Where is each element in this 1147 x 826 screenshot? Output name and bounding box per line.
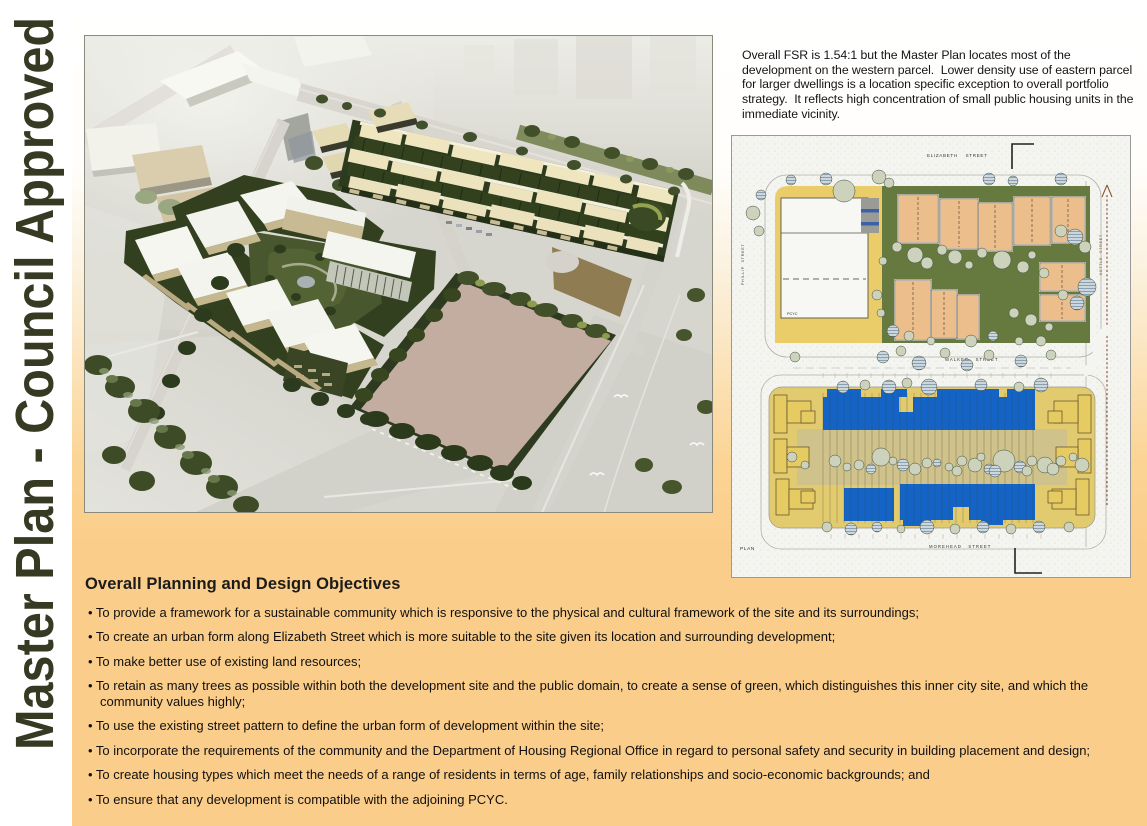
svg-text:MOREHEAD STREET: MOREHEAD STREET [929, 544, 991, 549]
svg-text:PLAN: PLAN [740, 546, 755, 552]
svg-text:PCYC: PCYC [787, 312, 798, 316]
svg-text:PHILLIP STREET: PHILLIP STREET [741, 243, 745, 285]
svg-text:ELIZABETH STREET: ELIZABETH STREET [927, 153, 988, 158]
svg-text:KETTLE STREET: KETTLE STREET [1099, 234, 1103, 275]
